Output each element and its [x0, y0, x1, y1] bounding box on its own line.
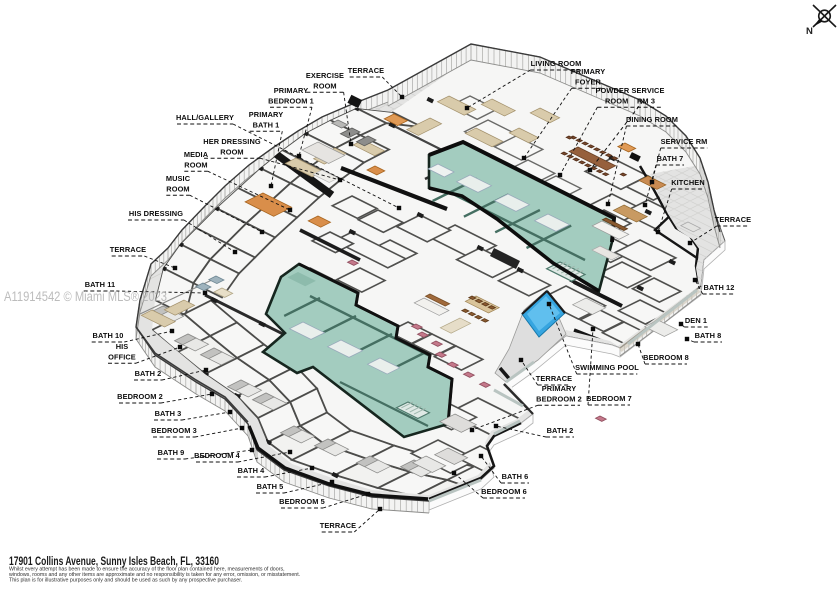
- svg-text:BATH 6: BATH 6: [502, 472, 529, 481]
- svg-text:BEDROOM 4: BEDROOM 4: [194, 451, 240, 460]
- svg-text:BATH 2: BATH 2: [135, 369, 162, 378]
- svg-text:ROOM RM 3: ROOM RM 3: [605, 96, 655, 105]
- svg-text:BATH 8: BATH 8: [695, 331, 722, 340]
- svg-text:PRIMARY: PRIMARY: [274, 86, 309, 95]
- svg-text:BATH 9: BATH 9: [158, 448, 185, 457]
- svg-text:BEDROOM 7: BEDROOM 7: [586, 394, 632, 403]
- svg-text:BATH 3: BATH 3: [155, 409, 182, 418]
- svg-text:PRIMARY: PRIMARY: [571, 67, 606, 76]
- svg-text:ROOM: ROOM: [166, 184, 189, 193]
- svg-text:TERRACE: TERRACE: [715, 215, 751, 224]
- svg-text:BEDROOM 5: BEDROOM 5: [279, 497, 325, 506]
- svg-text:PRIMARY: PRIMARY: [249, 110, 284, 119]
- svg-text:HALL/GALLERY: HALL/GALLERY: [176, 113, 234, 122]
- svg-text:BATH 5: BATH 5: [257, 482, 284, 491]
- svg-text:FOYER: FOYER: [575, 77, 602, 86]
- svg-text:MEDIA: MEDIA: [184, 150, 209, 159]
- svg-text:MUSIC: MUSIC: [166, 174, 191, 183]
- svg-text:HIS: HIS: [116, 342, 129, 351]
- svg-text:POWDER SERVICE: POWDER SERVICE: [595, 86, 664, 95]
- svg-text:TERRACE: TERRACE: [348, 66, 384, 75]
- svg-text:BATH 4: BATH 4: [238, 466, 266, 475]
- svg-text:BATH 7: BATH 7: [657, 154, 684, 163]
- svg-text:KITCHEN: KITCHEN: [671, 178, 705, 187]
- svg-text:BEDROOM 6: BEDROOM 6: [481, 487, 527, 496]
- svg-text:BEDROOM 2: BEDROOM 2: [536, 394, 582, 403]
- svg-text:ROOM: ROOM: [313, 81, 336, 90]
- svg-text:BATH 10: BATH 10: [93, 331, 124, 340]
- svg-text:PRIMARY: PRIMARY: [542, 384, 577, 393]
- svg-text:ROOM: ROOM: [220, 147, 243, 156]
- svg-text:A11914542 © Miami MLS® 2023: A11914542 © Miami MLS® 2023: [4, 289, 167, 304]
- svg-text:This plan is for illustrative: This plan is for illustrative purposes o…: [9, 577, 242, 583]
- svg-text:OFFICE: OFFICE: [108, 352, 136, 361]
- svg-text:ROOM: ROOM: [184, 160, 207, 169]
- svg-text:DEN 1: DEN 1: [685, 316, 707, 325]
- svg-text:BATH 12: BATH 12: [704, 283, 735, 292]
- svg-text:TERRACE: TERRACE: [110, 245, 146, 254]
- svg-text:SERVICE RM: SERVICE RM: [661, 137, 708, 146]
- svg-text:TERRACE: TERRACE: [320, 521, 356, 530]
- svg-text:BATH 11: BATH 11: [85, 280, 116, 289]
- svg-text:HER DRESSING: HER DRESSING: [203, 137, 261, 146]
- svg-text:EXERCISE: EXERCISE: [306, 71, 344, 80]
- svg-text:BEDROOM 3: BEDROOM 3: [151, 426, 197, 435]
- svg-text:N: N: [806, 26, 813, 37]
- svg-text:BEDROOM 2: BEDROOM 2: [117, 392, 163, 401]
- svg-text:HIS DRESSING: HIS DRESSING: [129, 209, 183, 218]
- svg-text:BEDROOM 1: BEDROOM 1: [268, 96, 314, 105]
- svg-text:BATH 1: BATH 1: [253, 120, 280, 129]
- svg-text:DINING ROOM: DINING ROOM: [626, 115, 678, 124]
- svg-text:TERRACE: TERRACE: [536, 374, 572, 383]
- svg-text:SWIMMING POOL: SWIMMING POOL: [575, 363, 639, 372]
- svg-text:BATH 2: BATH 2: [547, 426, 574, 435]
- svg-text:BEDROOM 8: BEDROOM 8: [643, 353, 689, 362]
